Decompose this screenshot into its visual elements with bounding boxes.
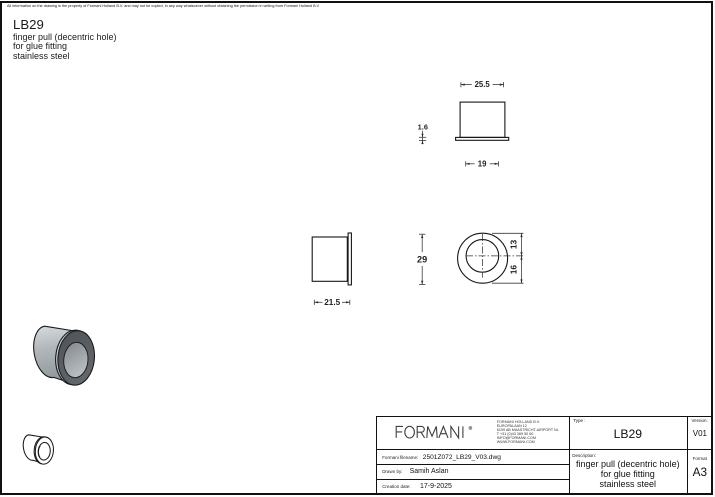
svg-text:29: 29 bbox=[417, 255, 427, 265]
svg-text:1.6: 1.6 bbox=[418, 122, 428, 131]
svg-text:19: 19 bbox=[478, 160, 487, 169]
svg-text:25.5: 25.5 bbox=[475, 80, 491, 89]
svg-text:16: 16 bbox=[509, 265, 519, 275]
svg-text:13: 13 bbox=[509, 240, 519, 250]
svg-text:21.5: 21.5 bbox=[324, 298, 340, 307]
